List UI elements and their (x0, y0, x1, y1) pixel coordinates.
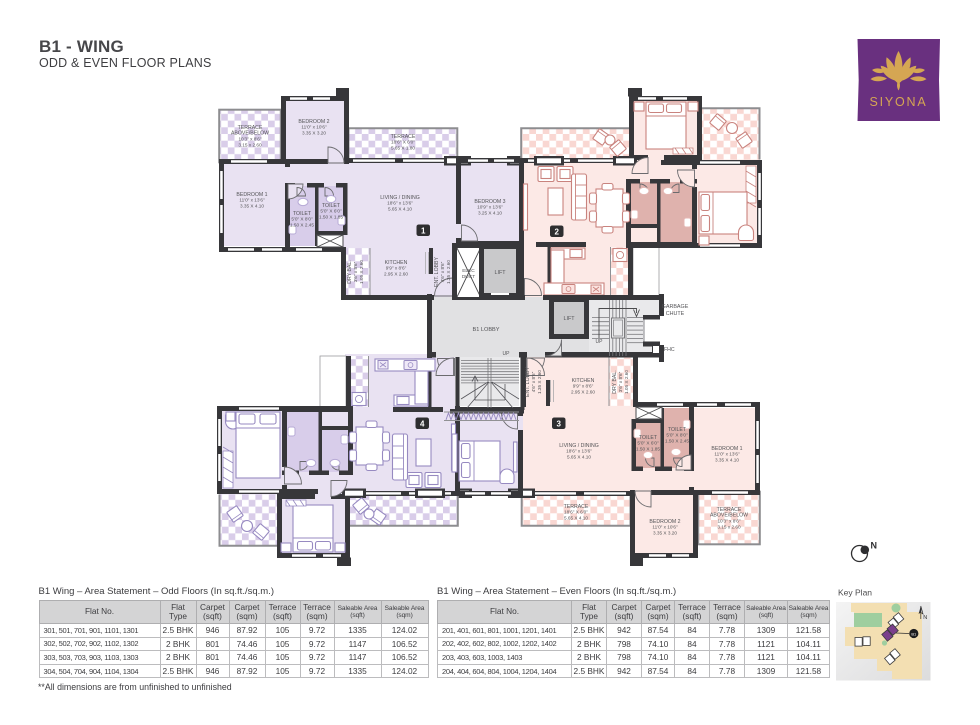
svg-text:10'3" x 8'6": 10'3" x 8'6" (717, 519, 740, 524)
svg-text:1.50 X 2.45: 1.50 X 2.45 (290, 222, 314, 227)
svg-text:3.15 x 2.60: 3.15 x 2.60 (238, 142, 262, 147)
svg-text:11'0" x 10'6": 11'0" x 10'6" (301, 125, 327, 130)
svg-text:1.05 X 2.60: 1.05 X 2.60 (624, 370, 629, 394)
svg-text:5.65 X 1.80: 5.65 X 1.80 (391, 145, 415, 150)
svg-text:18'6" x 13'6": 18'6" x 13'6" (387, 201, 413, 206)
svg-text:B1: B1 (911, 631, 917, 636)
svg-text:CHUTE: CHUTE (666, 311, 685, 317)
svg-text:1.35 X 2.60: 1.35 X 2.60 (446, 260, 451, 284)
svg-text:1.05 X 2.60: 1.05 X 2.60 (359, 260, 364, 284)
svg-text:5'0" X 8'0": 5'0" X 8'0" (666, 433, 688, 438)
svg-text:11'0" x 10'6": 11'0" x 10'6" (652, 525, 678, 530)
svg-text:ELEC: ELEC (462, 268, 475, 274)
svg-text:LIFT: LIFT (563, 316, 575, 322)
svg-text:3'6" x 8'6": 3'6" x 8'6" (618, 371, 623, 392)
svg-text:3.25 X 4.10: 3.25 X 4.10 (478, 210, 502, 215)
svg-text:11'0" x 13'6": 11'0" x 13'6" (714, 452, 740, 457)
svg-text:SIYONA: SIYONA (869, 95, 927, 109)
svg-text:4'6" x 8'6": 4'6" x 8'6" (440, 261, 445, 282)
svg-text:N: N (923, 615, 927, 621)
svg-text:1.50 X 1.85: 1.50 X 1.85 (319, 214, 343, 219)
svg-text:5.65 X 4.10: 5.65 X 4.10 (567, 454, 591, 459)
svg-text:11'0" x 13'6": 11'0" x 13'6" (239, 198, 265, 203)
svg-text:3'6" x 8'6": 3'6" x 8'6" (353, 261, 358, 282)
svg-text:2.95 X 2.60: 2.95 X 2.60 (571, 389, 595, 394)
svg-text:3.35 X 4.10: 3.35 X 4.10 (240, 203, 264, 208)
svg-text:GARBAGE: GARBAGE (662, 304, 689, 310)
svg-text:B1 LOBBY: B1 LOBBY (472, 327, 499, 333)
svg-text:9'9" x 8'6": 9'9" x 8'6" (386, 266, 407, 271)
svg-text:18'6" X 6'0": 18'6" X 6'0" (564, 510, 588, 515)
svg-text:3: 3 (557, 419, 562, 428)
svg-text:5'0" X 8'0": 5'0" X 8'0" (291, 217, 313, 222)
svg-text:10'9" x 13'6": 10'9" x 13'6" (477, 205, 503, 210)
svg-text:2: 2 (555, 227, 560, 236)
svg-text:LIFT: LIFT (494, 270, 506, 276)
svg-text:4: 4 (420, 419, 425, 428)
svg-text:3.35 X 3.20: 3.35 X 3.20 (653, 531, 677, 536)
svg-text:3.35 X 4.10: 3.35 X 4.10 (715, 457, 739, 462)
svg-text:Key Plan: Key Plan (838, 588, 872, 598)
svg-text:5'0" X 6'0": 5'0" X 6'0" (320, 209, 342, 214)
svg-text:DUCT: DUCT (462, 274, 475, 280)
svg-text:9'9" x 8'6": 9'9" x 8'6" (573, 384, 594, 389)
svg-text:1.35 X 2.60: 1.35 X 2.60 (537, 370, 542, 394)
svg-text:5'0" X 6'0": 5'0" X 6'0" (637, 441, 659, 446)
svg-text:5.65 X 4.10: 5.65 X 4.10 (388, 206, 412, 211)
svg-text:10'3" x 8'6": 10'3" x 8'6" (238, 137, 261, 142)
svg-text:1: 1 (421, 226, 426, 235)
svg-text:18'6" X 6'0": 18'6" X 6'0" (391, 140, 415, 145)
svg-text:5.65 X 4.10: 5.65 X 4.10 (564, 516, 588, 521)
svg-text:3.35 X 3.20: 3.35 X 3.20 (302, 130, 326, 135)
svg-text:UP: UP (503, 351, 511, 357)
svg-text:2.95 X 2.60: 2.95 X 2.60 (384, 271, 408, 276)
svg-text:N: N (871, 541, 878, 551)
svg-text:1.50 X 2.45: 1.50 X 2.45 (665, 438, 689, 443)
svg-text:FHC: FHC (664, 347, 675, 353)
svg-text:4'6" x 8'6": 4'6" x 8'6" (531, 371, 536, 392)
svg-text:18'6" x 13'6": 18'6" x 13'6" (566, 449, 592, 454)
svg-text:UP: UP (596, 339, 604, 345)
svg-text:1.50 X 1.85: 1.50 X 1.85 (636, 446, 660, 451)
svg-text:3.15 x 2.60: 3.15 x 2.60 (717, 524, 741, 529)
